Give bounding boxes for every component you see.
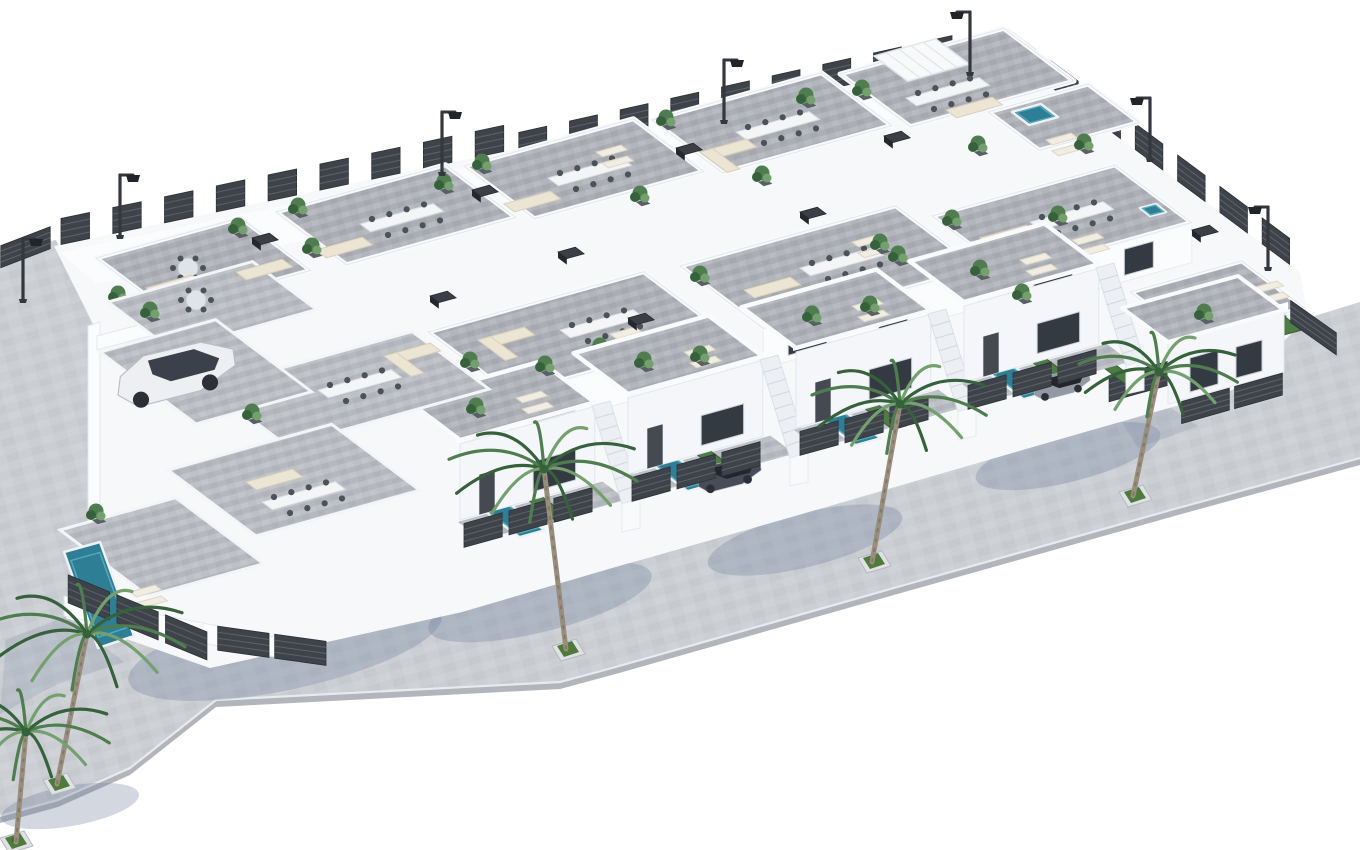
- chair: [379, 367, 385, 373]
- chair: [950, 80, 956, 86]
- chair: [386, 211, 392, 217]
- car-wheel: [743, 475, 752, 484]
- plant-foliage: [802, 312, 812, 322]
- plant-foliage: [445, 182, 454, 191]
- chair: [420, 222, 426, 228]
- plant-foliage: [701, 354, 710, 363]
- chair: [343, 398, 349, 404]
- plant-foliage: [630, 192, 640, 202]
- plant-foliage: [1048, 212, 1058, 222]
- plant-foliage: [899, 254, 908, 263]
- plant-foliage: [942, 216, 952, 226]
- chair: [327, 382, 333, 388]
- lamp-head: [950, 12, 964, 19]
- chair: [208, 297, 214, 303]
- chair: [421, 201, 427, 207]
- chair: [585, 338, 591, 344]
- plant-foliage: [1194, 310, 1204, 320]
- lamp-head: [29, 239, 43, 246]
- chair: [604, 312, 610, 318]
- staircase-side-wall: [622, 498, 640, 532]
- chair: [826, 255, 832, 261]
- plant-foliage: [852, 86, 862, 96]
- entrance-door: [983, 332, 998, 376]
- plant-foliage: [863, 88, 872, 97]
- chair: [1039, 214, 1045, 220]
- chair: [201, 307, 207, 313]
- chair: [608, 176, 614, 182]
- chair: [323, 479, 329, 485]
- car-wheel: [1074, 385, 1082, 393]
- chair: [437, 217, 443, 223]
- palm-crown: [1155, 368, 1164, 377]
- plant-foliage: [953, 218, 962, 227]
- entrance-door: [815, 378, 830, 422]
- plant-foliage: [86, 510, 96, 520]
- chair: [1090, 220, 1096, 226]
- plant-foliage: [690, 272, 700, 282]
- plant-foliage: [807, 96, 816, 105]
- plant-foliage: [471, 360, 480, 369]
- lamp-head: [730, 60, 744, 67]
- lamp-head: [126, 175, 140, 182]
- chair: [395, 383, 401, 389]
- plant-foliage: [535, 362, 545, 372]
- chair: [797, 109, 803, 115]
- chair: [796, 130, 802, 136]
- car-wheel: [202, 374, 218, 390]
- chair: [306, 484, 312, 490]
- chair: [625, 171, 631, 177]
- chair: [967, 75, 973, 81]
- palm-crown: [83, 630, 92, 639]
- plant-foliage: [1059, 214, 1068, 223]
- chair: [369, 216, 375, 222]
- plant-foliage: [701, 274, 710, 283]
- chair: [344, 377, 350, 383]
- chair: [339, 495, 345, 501]
- chair: [1091, 199, 1097, 205]
- chair: [877, 261, 883, 267]
- plant-foliage: [228, 224, 238, 234]
- chair: [948, 101, 954, 107]
- plant-foliage: [302, 244, 312, 254]
- plant-foliage: [881, 242, 890, 251]
- plant-foliage: [1085, 142, 1094, 151]
- chair: [762, 119, 768, 125]
- palm-crown: [22, 728, 31, 737]
- plant-foliage: [870, 240, 880, 250]
- chair: [178, 297, 184, 303]
- chair: [322, 500, 328, 506]
- plant-foliage: [483, 162, 492, 171]
- lamp-head: [448, 112, 462, 119]
- plant-foliage: [140, 308, 150, 318]
- development-3d-render: [0, 0, 1360, 850]
- render-canvas: New-build villa development - aerial 3D …: [0, 0, 1360, 850]
- chair: [1072, 225, 1078, 231]
- palm-crown: [540, 465, 549, 474]
- plant-foliage: [1023, 292, 1032, 301]
- chair: [402, 227, 408, 233]
- chair: [557, 170, 563, 176]
- chair: [271, 494, 277, 500]
- plant-foliage: [151, 310, 160, 319]
- chair: [931, 106, 937, 112]
- chair: [574, 165, 580, 171]
- plant-foliage: [434, 180, 444, 190]
- plant-foliage: [288, 204, 298, 214]
- plant-foliage: [970, 266, 980, 276]
- chair: [178, 255, 184, 261]
- chair: [1074, 204, 1080, 210]
- chair: [193, 255, 199, 261]
- chair: [780, 114, 786, 120]
- chair: [983, 91, 989, 97]
- plant-foliage: [477, 406, 486, 415]
- plant-foliage: [968, 142, 978, 152]
- plant-foliage: [796, 94, 806, 104]
- plant-foliage: [690, 352, 700, 362]
- chair: [569, 322, 575, 328]
- plant-foliage: [546, 364, 555, 373]
- plant-foliage: [645, 360, 654, 369]
- chair: [200, 265, 206, 271]
- chair: [813, 125, 819, 131]
- chair: [621, 307, 627, 313]
- plant-foliage: [860, 302, 870, 312]
- chair: [1107, 215, 1113, 221]
- chair: [573, 186, 579, 192]
- car-wheel: [706, 484, 715, 493]
- chair: [745, 124, 751, 130]
- chair: [932, 85, 938, 91]
- chair: [385, 232, 391, 238]
- chair: [170, 265, 176, 271]
- plant-foliage: [979, 144, 988, 153]
- plant-foliage: [239, 226, 248, 235]
- chair: [287, 510, 293, 516]
- chair: [186, 307, 192, 313]
- lamp-head: [1130, 98, 1144, 105]
- plant-foliage: [1074, 140, 1084, 150]
- plant-foliage: [871, 304, 880, 313]
- chair: [378, 388, 384, 394]
- chair: [844, 250, 850, 256]
- plant-foliage: [634, 358, 644, 368]
- chair: [778, 135, 784, 141]
- chair: [288, 489, 294, 495]
- chair: [966, 96, 972, 102]
- plant-foliage: [299, 206, 308, 215]
- chair: [590, 181, 596, 187]
- plant-foliage: [752, 172, 762, 182]
- plant-foliage: [763, 174, 772, 183]
- plant-foliage: [472, 160, 482, 170]
- car-wheel: [1041, 393, 1049, 401]
- chair: [201, 287, 207, 293]
- plant-foliage: [981, 268, 990, 277]
- plant-foliage: [253, 412, 262, 421]
- plant-foliage: [656, 116, 666, 126]
- plant-foliage: [242, 410, 252, 420]
- plant-foliage: [813, 314, 822, 323]
- chair: [915, 90, 921, 96]
- staircase-side-wall: [790, 452, 808, 486]
- chair: [586, 317, 592, 323]
- plant-foliage: [460, 358, 470, 368]
- chair: [404, 206, 410, 212]
- plant-foliage: [667, 118, 676, 127]
- chair: [809, 260, 815, 266]
- chair: [761, 140, 767, 146]
- window: [1236, 340, 1262, 378]
- car-wheel: [133, 392, 149, 408]
- entrance-door: [647, 424, 662, 468]
- plant-foliage: [466, 404, 476, 414]
- plant-foliage: [641, 194, 650, 203]
- chair: [304, 505, 310, 511]
- plant-foliage: [1012, 290, 1022, 300]
- plant-foliage: [1205, 312, 1214, 321]
- palm-crown: [896, 400, 905, 409]
- plant-foliage: [313, 246, 322, 255]
- chair: [186, 287, 192, 293]
- chair: [360, 393, 366, 399]
- chair: [592, 160, 598, 166]
- chair: [362, 372, 368, 378]
- lamp-head: [1248, 207, 1262, 214]
- plant-foliage: [97, 512, 106, 521]
- plant-foliage: [888, 252, 898, 262]
